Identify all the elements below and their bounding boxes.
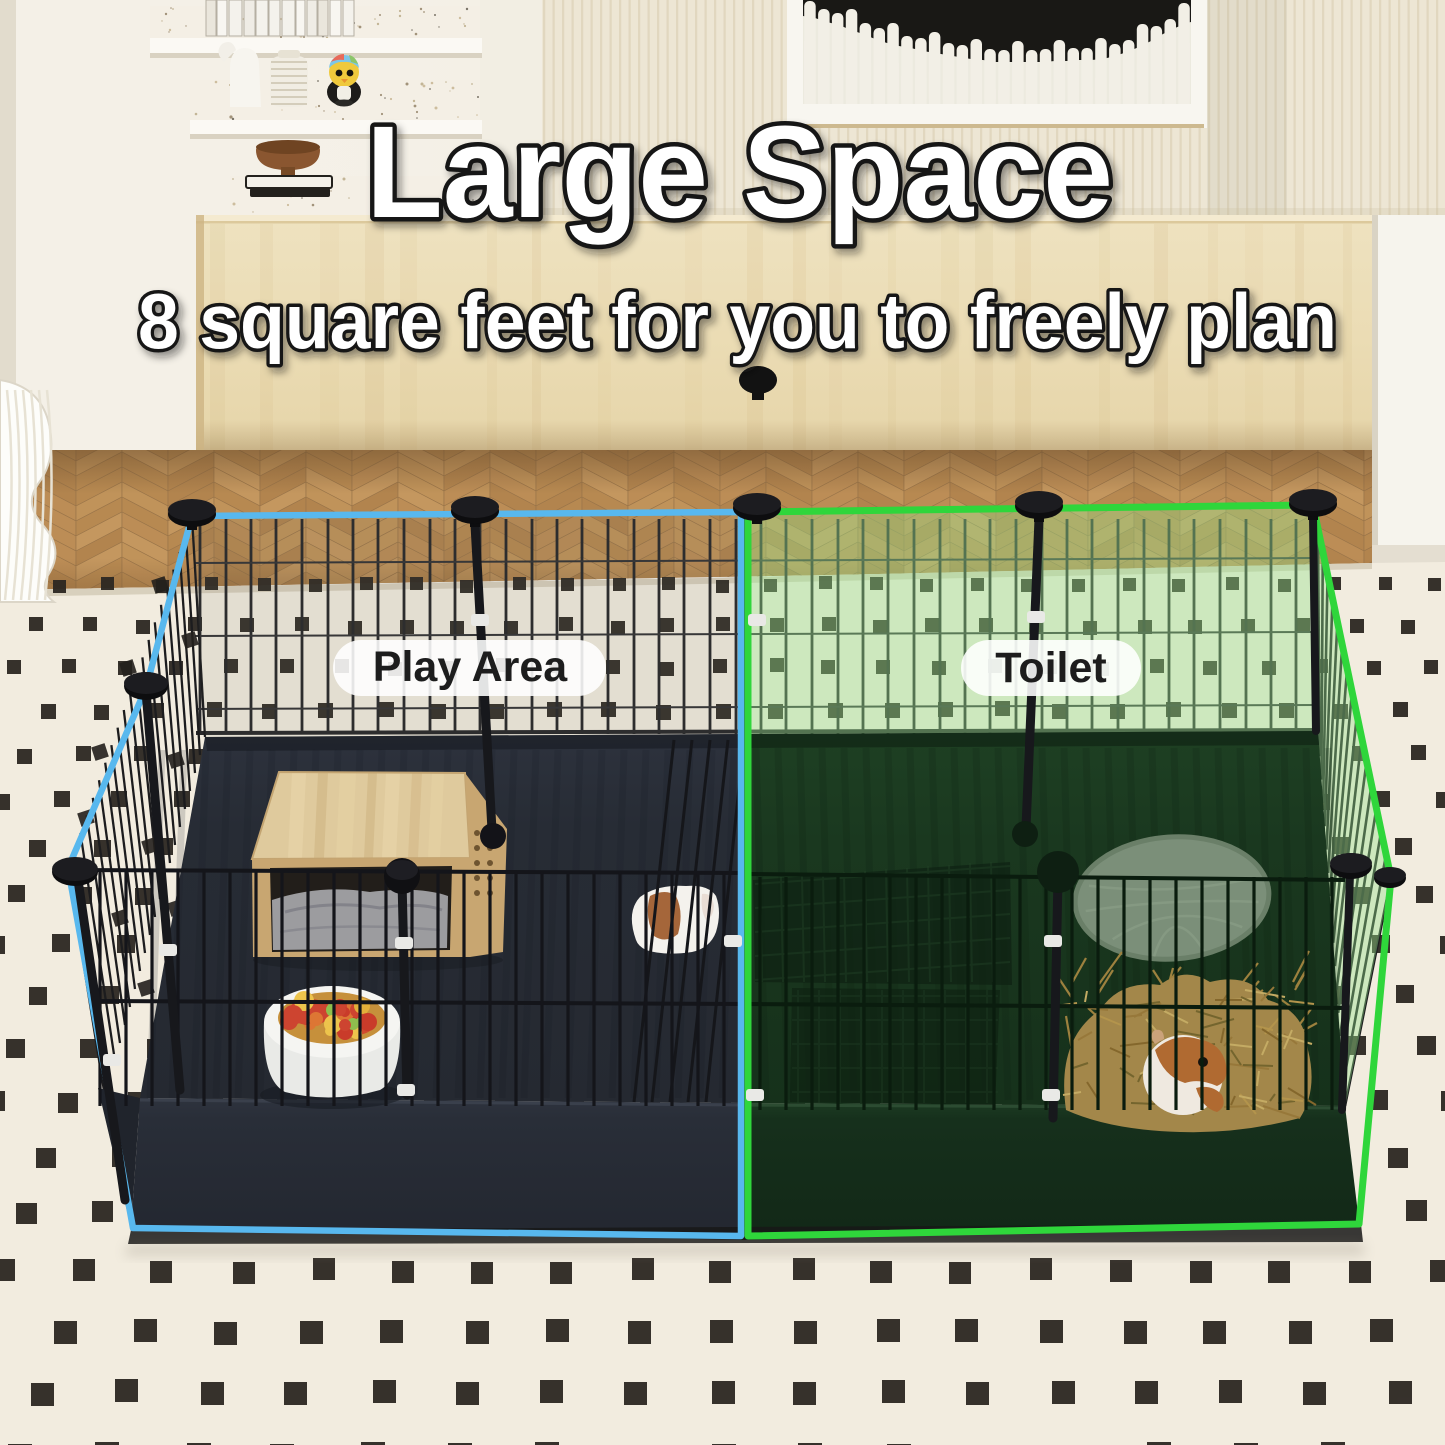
- svg-text:Toilet: Toilet: [995, 644, 1106, 692]
- svg-text:Large Space: Large Space: [366, 98, 1113, 245]
- svg-text:8 square feet for you to freel: 8 square feet for you to freely plan: [138, 277, 1337, 365]
- svg-text:Play Area: Play Area: [373, 643, 569, 691]
